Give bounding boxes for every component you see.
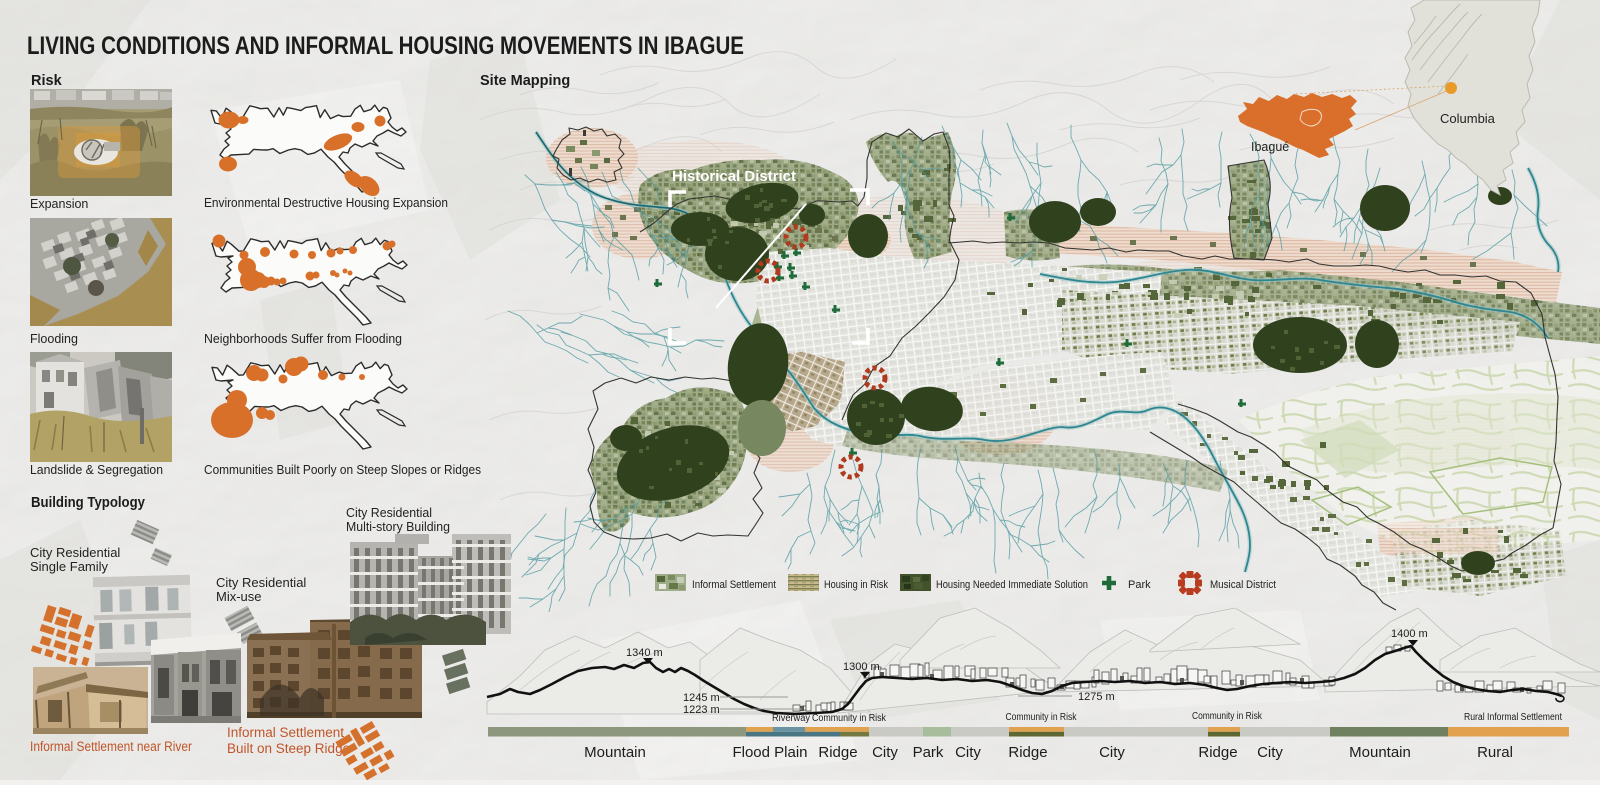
svg-text:Community in Risk: Community in Risk bbox=[812, 713, 887, 724]
svg-text:Informal Settlement: Informal Settlement bbox=[692, 579, 776, 591]
svg-text:1245 m: 1245 m bbox=[683, 692, 720, 704]
svg-text:1340 m: 1340 m bbox=[626, 647, 663, 659]
svg-text:Park: Park bbox=[913, 744, 944, 761]
svg-text:Ridge: Ridge bbox=[1198, 744, 1237, 761]
svg-text:1300 m: 1300 m bbox=[843, 661, 880, 673]
svg-text:Housing Needed Immediate Solut: Housing Needed Immediate Solution bbox=[936, 579, 1088, 591]
svg-text:City: City bbox=[1099, 744, 1125, 761]
svg-text:Ridge: Ridge bbox=[818, 744, 857, 761]
svg-text:Communities Built Poorly on St: Communities Built Poorly on Steep Slopes… bbox=[204, 463, 481, 477]
svg-text:Community in Risk: Community in Risk bbox=[1006, 712, 1078, 723]
svg-text:1400 m: 1400 m bbox=[1391, 628, 1428, 640]
svg-text:Informal Settlement: Informal Settlement bbox=[227, 725, 344, 740]
svg-text:Ridge: Ridge bbox=[1008, 744, 1047, 761]
svg-text:Community in Risk: Community in Risk bbox=[1192, 711, 1263, 722]
svg-text:Expansion: Expansion bbox=[30, 197, 88, 211]
svg-text:City Residential: City Residential bbox=[216, 575, 306, 590]
svg-text:1275 m: 1275 m bbox=[1078, 691, 1115, 703]
svg-text:City: City bbox=[872, 744, 898, 761]
svg-text:Landslide & Segregation: Landslide & Segregation bbox=[30, 463, 163, 477]
svg-text:Columbia: Columbia bbox=[1440, 111, 1496, 126]
svg-text:Single Family: Single Family bbox=[30, 559, 109, 574]
svg-text:Building Typology: Building Typology bbox=[31, 495, 145, 511]
svg-text:City: City bbox=[1257, 744, 1283, 761]
svg-text:Mountain: Mountain bbox=[584, 744, 646, 761]
svg-text:Built on Steep Ridge: Built on Steep Ridge bbox=[227, 741, 350, 756]
svg-text:1223 m: 1223 m bbox=[683, 704, 720, 716]
svg-text:City Residential: City Residential bbox=[30, 545, 120, 560]
svg-text:Musical District: Musical District bbox=[1210, 579, 1276, 591]
svg-text:City: City bbox=[955, 744, 981, 761]
svg-text:Park: Park bbox=[1128, 579, 1151, 591]
svg-text:LIVING CONDITIONS AND INFORMAL: LIVING CONDITIONS AND INFORMAL HOUSING M… bbox=[27, 32, 744, 60]
svg-text:Ibagué: Ibagué bbox=[1251, 140, 1289, 154]
svg-text:Flood Plain: Flood Plain bbox=[732, 744, 807, 761]
svg-text:Flooding: Flooding bbox=[30, 332, 78, 346]
svg-text:Rural: Rural bbox=[1477, 744, 1513, 761]
svg-text:Risk: Risk bbox=[31, 73, 63, 89]
svg-text:Mountain: Mountain bbox=[1349, 744, 1411, 761]
svg-text:Rural Informal Settlement: Rural Informal Settlement bbox=[1464, 712, 1562, 723]
svg-text:Multi-story Building: Multi-story Building bbox=[346, 519, 450, 534]
svg-text:Site Mapping: Site Mapping bbox=[480, 73, 570, 89]
svg-text:Informal Settlement near River: Informal Settlement near River bbox=[30, 739, 192, 754]
svg-text:Housing in Risk: Housing in Risk bbox=[824, 579, 888, 591]
svg-text:Historical District: Historical District bbox=[672, 169, 796, 185]
svg-text:City Residential: City Residential bbox=[346, 505, 432, 520]
svg-text:Riverway: Riverway bbox=[772, 713, 810, 724]
svg-text:Environmental Destructive Hous: Environmental Destructive Housing Expans… bbox=[204, 196, 448, 210]
svg-text:Neighborhoods Suffer from Floo: Neighborhoods Suffer from Flooding bbox=[204, 332, 402, 346]
svg-text:Mix-use: Mix-use bbox=[216, 589, 262, 604]
